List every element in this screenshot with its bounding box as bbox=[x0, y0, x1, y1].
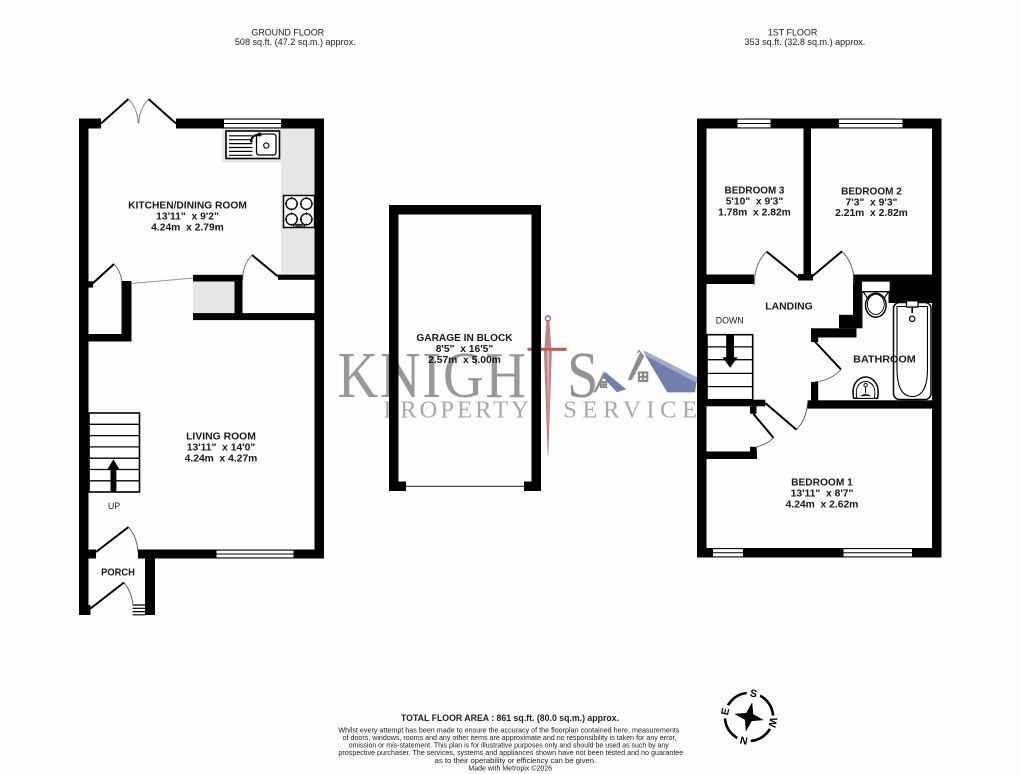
svg-text:4.24m x 2.79m: 4.24m x 2.79m bbox=[151, 222, 224, 233]
svg-text:DOWN: DOWN bbox=[716, 316, 744, 326]
svg-text:KITCHEN/DINING ROOM: KITCHEN/DINING ROOM bbox=[128, 201, 247, 212]
svg-text:13'11" x 9'2": 13'11" x 9'2" bbox=[156, 212, 219, 223]
svg-text:4.24m x 2.62m: 4.24m x 2.62m bbox=[786, 499, 859, 510]
svg-text:PROPERTY: PROPERTY bbox=[384, 396, 530, 423]
svg-text:2.57m x 5.00m: 2.57m x 5.00m bbox=[428, 355, 501, 366]
svg-text:13'11" x 8'7": 13'11" x 8'7" bbox=[791, 489, 854, 500]
svg-text:LIVING ROOM: LIVING ROOM bbox=[186, 432, 256, 443]
svg-text:LANDING: LANDING bbox=[765, 302, 813, 313]
svg-text:GARAGE IN BLOCK: GARAGE IN BLOCK bbox=[416, 333, 513, 344]
svg-text:2.21m x 2.82m: 2.21m x 2.82m bbox=[835, 208, 908, 219]
svg-text:UP: UP bbox=[108, 501, 120, 511]
svg-text:TOTAL FLOOR AREA : 861 sq.ft.: TOTAL FLOOR AREA : 861 sq.ft. (80.0 sq.m… bbox=[401, 712, 619, 723]
svg-text:5'10" x 9'3": 5'10" x 9'3" bbox=[726, 197, 784, 208]
svg-text:BEDROOM 1: BEDROOM 1 bbox=[791, 478, 853, 489]
svg-text:1.78m x 2.82m: 1.78m x 2.82m bbox=[718, 207, 791, 218]
svg-text:BEDROOM 3: BEDROOM 3 bbox=[725, 186, 785, 197]
svg-text:13'11" x 14'0": 13'11" x 14'0" bbox=[187, 443, 256, 454]
svg-text:4.24m x 4.27m: 4.24m x 4.27m bbox=[185, 453, 258, 464]
svg-text:8'5" x 16'5": 8'5" x 16'5" bbox=[436, 344, 494, 355]
svg-text:PORCH: PORCH bbox=[101, 568, 135, 579]
svg-text:Made with Metropix ©2026: Made with Metropix ©2026 bbox=[468, 763, 552, 772]
svg-text:BATHROOM: BATHROOM bbox=[853, 355, 916, 366]
svg-text:BEDROOM 2: BEDROOM 2 bbox=[841, 187, 902, 198]
svg-text:353 sq.ft. (32.8 sq.m.) approx: 353 sq.ft. (32.8 sq.m.) approx. bbox=[745, 36, 866, 47]
svg-text:508 sq.ft. (47.2 sq.m.) approx: 508 sq.ft. (47.2 sq.m.) approx. bbox=[235, 36, 356, 47]
svg-text:7'3" x 9'3": 7'3" x 9'3" bbox=[846, 197, 898, 208]
